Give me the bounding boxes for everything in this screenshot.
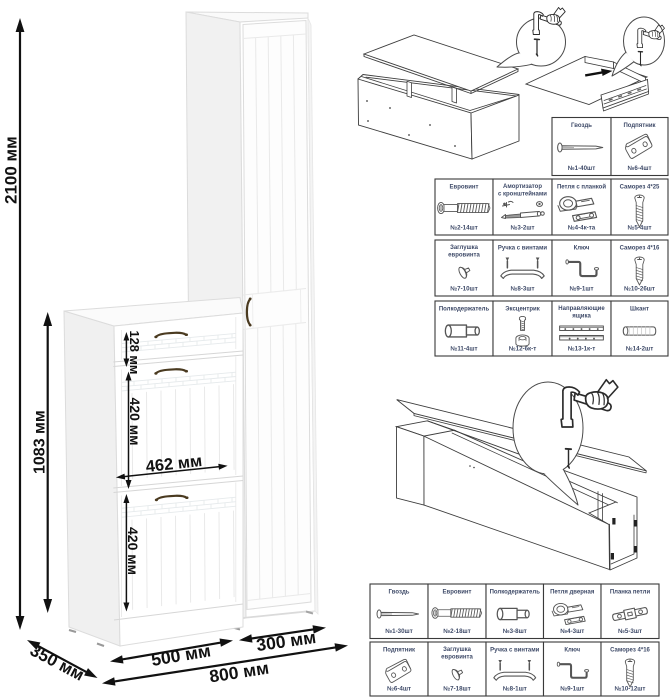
svg-text:Амортизатор: Амортизатор <box>503 184 542 190</box>
svg-text:Шкант: Шкант <box>630 307 649 313</box>
svg-text:№1-40шт: №1-40шт <box>568 165 595 172</box>
svg-text:№3-8шт: №3-8шт <box>503 628 527 635</box>
svg-text:Полкодержатель: Полкодержатель <box>439 307 490 313</box>
svg-text:№7-10шт: №7-10шт <box>450 286 477 293</box>
svg-text:№14-2шт: №14-2шт <box>626 346 653 353</box>
svg-text:№13-1к-т: №13-1к-т <box>568 346 595 353</box>
svg-text:Гвоздь: Гвоздь <box>571 123 592 129</box>
svg-text:№8-1шт: №8-1шт <box>503 686 527 693</box>
svg-text:Планка петли: Планка петли <box>610 590 651 596</box>
svg-text:с кронштейнами: с кронштейнами <box>498 191 547 198</box>
svg-text:Полкодержатель: Полкодержатель <box>490 590 541 596</box>
svg-text:Ручка с винтами: Ручка с винтами <box>490 648 540 654</box>
svg-text:№8-3шт: №8-3шт <box>510 286 534 293</box>
svg-text:ящика: ящика <box>572 314 591 320</box>
svg-text:420 мм: 420 мм <box>127 398 143 446</box>
svg-text:№10-26шт: №10-26шт <box>624 286 655 293</box>
svg-text:Саморез 4*16: Саморез 4*16 <box>620 246 660 252</box>
svg-text:№6-4шт: №6-4шт <box>387 686 411 693</box>
svg-text:№9-1шт: №9-1шт <box>569 286 593 293</box>
svg-text:2100 мм: 2100 мм <box>2 136 21 204</box>
svg-text:Заглушка: Заглушка <box>450 245 479 251</box>
svg-text:Подпятник: Подпятник <box>383 648 415 654</box>
svg-text:Ключ: Ключ <box>564 648 580 654</box>
svg-text:Направляющие: Направляющие <box>558 306 605 312</box>
svg-text:№4-3шт: №4-3шт <box>560 628 584 635</box>
svg-text:№5-3шт: №5-3шт <box>618 628 642 635</box>
svg-text:Подпятник: Подпятник <box>623 123 655 129</box>
svg-text:Саморез 4*16: Саморез 4*16 <box>610 648 650 654</box>
svg-text:№2-14шт: №2-14шт <box>450 225 477 232</box>
svg-text:№7-18шт: №7-18шт <box>443 686 470 693</box>
svg-text:Петля дверная: Петля дверная <box>550 590 595 596</box>
svg-text:евровинта: евровинта <box>441 655 473 661</box>
svg-text:№2-18шт: №2-18шт <box>443 628 470 635</box>
svg-text:Заглушка: Заглушка <box>443 647 472 653</box>
svg-text:№4-4к-та: №4-4к-та <box>568 225 596 232</box>
svg-text:№1-30шт: №1-30шт <box>385 628 412 635</box>
svg-text:Ручка с винтами: Ручка с винтами <box>498 246 548 252</box>
svg-text:128 мм: 128 мм <box>127 331 142 375</box>
svg-text:1083 мм: 1083 мм <box>31 410 48 474</box>
svg-text:№12-6к-т: №12-6к-т <box>509 346 536 353</box>
svg-text:Петля с планкой: Петля с планкой <box>557 184 606 191</box>
svg-text:№9-1шт: №9-1шт <box>560 686 584 693</box>
svg-text:Эксцентрик: Эксцентрик <box>505 307 539 313</box>
svg-text:Саморез 4*25: Саморез 4*25 <box>620 185 660 191</box>
svg-text:№6-4шт: №6-4шт <box>627 165 651 172</box>
svg-text:Евровинт: Евровинт <box>450 185 479 191</box>
svg-text:евровинта: евровинта <box>448 253 480 259</box>
svg-text:420 мм: 420 мм <box>125 527 141 575</box>
svg-text:№11-4шт: №11-4шт <box>450 346 477 353</box>
svg-text:Гвоздь: Гвоздь <box>389 590 410 596</box>
svg-text:Ключ: Ключ <box>574 246 590 252</box>
svg-text:Евровинт: Евровинт <box>443 590 472 596</box>
svg-text:№3-2шт: №3-2шт <box>510 225 534 232</box>
